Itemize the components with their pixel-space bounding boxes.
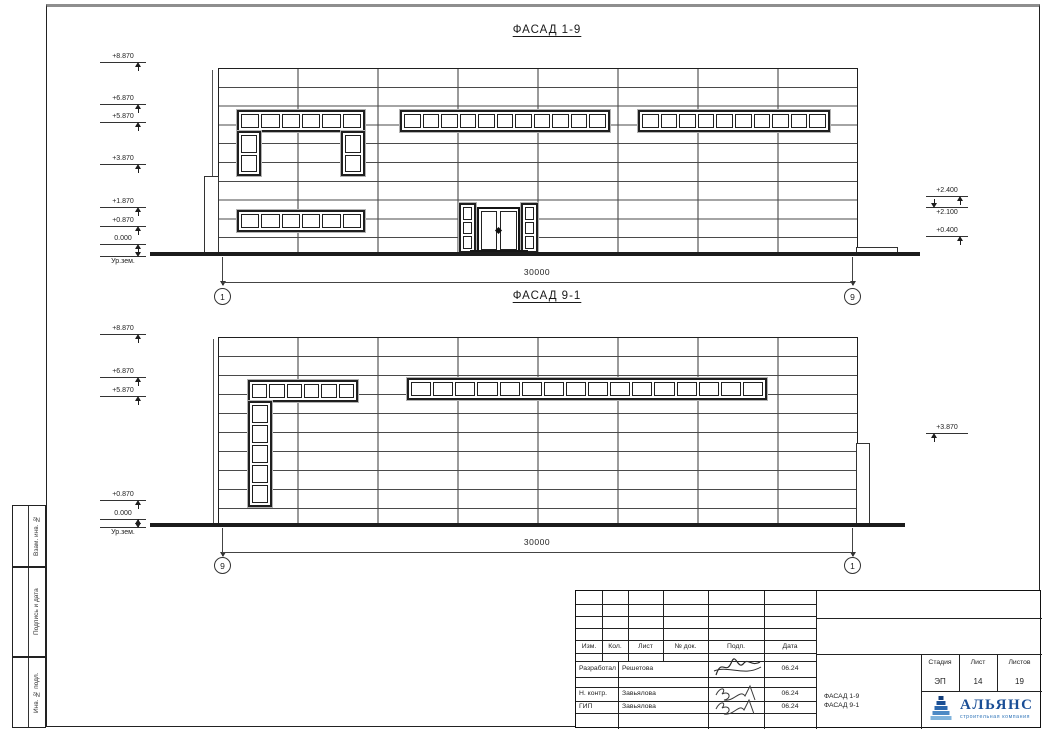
window-pane xyxy=(699,382,719,396)
elevation-mark: 0.000 xyxy=(100,235,146,245)
window-pane xyxy=(544,382,564,396)
window-pane xyxy=(252,425,268,443)
tb-name: Завьялова xyxy=(622,690,656,697)
window-strip xyxy=(237,110,365,132)
window-pane xyxy=(677,382,697,396)
window-pane xyxy=(343,114,361,128)
tb-sheet-value: 14 xyxy=(959,677,997,686)
window-pane xyxy=(571,114,588,128)
elevation-mark: +3.870 xyxy=(926,424,968,434)
window-pane xyxy=(345,155,361,173)
elevation-mark: +1.870 xyxy=(100,198,146,208)
window-pane xyxy=(241,135,257,153)
elevation-tick xyxy=(135,122,141,127)
facade-9-1-title: ФАСАД 9-1 xyxy=(437,290,657,302)
elevation-mark: +5.870 xyxy=(100,113,146,123)
elevation-tick xyxy=(135,207,141,212)
window-pane xyxy=(261,114,279,128)
window-pane xyxy=(661,114,678,128)
window-strip xyxy=(407,378,767,400)
elevation-mark: 0.000 xyxy=(100,510,146,520)
elevation-tick xyxy=(135,523,141,528)
company-tagline: строительная компания xyxy=(960,715,1033,720)
window-pane xyxy=(423,114,440,128)
elevation-tick xyxy=(135,396,141,401)
window-pane xyxy=(642,114,659,128)
window-pane xyxy=(302,214,320,228)
tb-col-kol: Кол. xyxy=(602,643,628,650)
tb-col-ndok: № док. xyxy=(663,643,708,650)
window-pane xyxy=(433,382,453,396)
window-pane xyxy=(463,222,472,235)
window-pane xyxy=(441,114,458,128)
window-pane xyxy=(534,114,551,128)
tb-sheets-label: Листов xyxy=(997,659,1042,666)
margin-stamp-label: Взам. инв. № xyxy=(28,506,45,566)
dimension-line xyxy=(222,282,852,283)
window-column xyxy=(237,131,261,176)
window-pane xyxy=(252,384,267,398)
ground-line xyxy=(150,252,920,256)
entrance-sidelight xyxy=(459,203,476,253)
window-pane xyxy=(287,384,302,398)
window-pane xyxy=(654,382,674,396)
ground-level-label: Ур.зем. xyxy=(100,256,146,265)
tb-col-podp: Подп. xyxy=(708,643,764,650)
window-pane xyxy=(754,114,771,128)
elevation-tick xyxy=(957,236,963,241)
axis-bubble-9: 9 xyxy=(214,557,231,574)
window-strip xyxy=(638,110,830,132)
window-pane xyxy=(610,382,630,396)
tb-date: 06.24 xyxy=(764,665,816,672)
window-pane xyxy=(241,214,259,228)
dimension-value: 30000 xyxy=(497,267,577,277)
window-pane xyxy=(515,114,532,128)
axis-leader xyxy=(852,528,853,556)
drawing-sheet: Взам. инв. № Подпись и дата Инв. № подл.… xyxy=(0,0,1047,733)
window-pane xyxy=(404,114,421,128)
window-pane xyxy=(261,214,279,228)
elevation-tick xyxy=(135,252,141,257)
elevation-tick xyxy=(135,226,141,231)
window-pane xyxy=(282,214,300,228)
elevation-mark: +0.870 xyxy=(100,491,146,501)
dimension-value: 30000 xyxy=(497,537,577,547)
window-pane xyxy=(282,114,300,128)
window-pane xyxy=(552,114,569,128)
window-strip xyxy=(248,380,358,402)
window-column xyxy=(248,401,272,507)
signature-zavyalova xyxy=(712,697,764,719)
elevation-tick xyxy=(135,104,141,109)
window-pane xyxy=(252,405,268,423)
elevation-tick xyxy=(135,62,141,67)
window-pane xyxy=(343,214,361,228)
window-column xyxy=(341,131,365,176)
window-pane xyxy=(525,222,534,235)
window-pane xyxy=(698,114,715,128)
tb-col-list: Лист xyxy=(628,643,663,650)
margin-stamp-label: Подпись и дата xyxy=(28,568,45,656)
signature-reshetova xyxy=(710,651,764,681)
window-pane xyxy=(679,114,696,128)
tb-name: Завьялова xyxy=(622,703,656,710)
elevation-tick xyxy=(135,500,141,505)
right-annex-wall xyxy=(856,443,870,525)
facade-9-1-building xyxy=(218,337,858,527)
window-pane xyxy=(322,114,340,128)
elevation-mark: +8.870 xyxy=(100,325,146,335)
axis-bubble-1: 1 xyxy=(844,557,861,574)
window-strip xyxy=(237,210,365,232)
window-pane xyxy=(252,485,268,503)
elevation-tick xyxy=(135,377,141,382)
facade-1-9-title: ФАСАД 1-9 xyxy=(437,24,657,36)
window-pane xyxy=(721,382,741,396)
elevation-mark: +0.400 xyxy=(926,227,968,237)
window-pane xyxy=(525,207,534,220)
window-pane xyxy=(588,382,608,396)
elevation-mark: +3.870 xyxy=(100,155,146,165)
window-pane xyxy=(743,382,763,396)
window-pane xyxy=(809,114,826,128)
company-logo: АЛЬЯНС строительная компания xyxy=(928,694,1033,724)
window-pane xyxy=(269,384,284,398)
window-pane xyxy=(241,114,259,128)
window-pane xyxy=(304,384,319,398)
tb-doc-name-line2: ФАСАД 9-1 xyxy=(824,702,859,709)
entrance-sidelight xyxy=(521,203,538,253)
window-pane xyxy=(241,155,257,173)
axis-bubble-9: 9 xyxy=(844,288,861,305)
window-pane xyxy=(302,114,320,128)
tb-name: Решетова xyxy=(622,665,653,672)
dimension-line xyxy=(222,552,852,553)
tb-sheet-label: Лист xyxy=(959,659,997,666)
window-pane xyxy=(477,382,497,396)
elevation-mark: +6.870 xyxy=(100,368,146,378)
window-pane xyxy=(411,382,431,396)
window-pane xyxy=(463,236,472,249)
elevation-tick xyxy=(931,433,937,438)
window-pane xyxy=(252,465,268,483)
window-pane xyxy=(566,382,586,396)
elevation-mark: +6.870 xyxy=(100,95,146,105)
ground-level-label: Ур.зем. xyxy=(100,527,146,536)
window-pane xyxy=(478,114,495,128)
ground-line xyxy=(150,523,905,527)
window-pane xyxy=(321,384,336,398)
elevation-mark: +2.400 xyxy=(926,187,968,197)
window-strip xyxy=(400,110,610,132)
window-pane xyxy=(463,207,472,220)
tb-stage-value: ЭП xyxy=(921,677,959,686)
window-pane xyxy=(500,382,520,396)
elevation-mark: +5.870 xyxy=(100,387,146,397)
tb-col-izm: Изм. xyxy=(576,643,602,650)
tb-doc-name-line1: ФАСАД 1-9 xyxy=(824,693,859,700)
corner-pilaster-line xyxy=(213,339,214,524)
window-pane xyxy=(455,382,475,396)
window-pane xyxy=(735,114,752,128)
tb-col-data: Дата xyxy=(764,643,816,650)
tb-date: 06.24 xyxy=(764,703,816,710)
elevation-mark: +2.100 xyxy=(926,207,968,216)
tb-role: Н. контр. xyxy=(579,690,607,697)
axis-leader xyxy=(222,257,223,285)
company-name: АЛЬЯНС xyxy=(960,698,1033,713)
margin-stamp-inv: Инв. № подл. xyxy=(12,657,46,728)
window-pane xyxy=(497,114,514,128)
tb-sheets-value: 19 xyxy=(997,677,1042,686)
window-pane xyxy=(632,382,652,396)
elevation-tick xyxy=(931,203,937,208)
elevation-tick xyxy=(135,334,141,339)
elevation-mark: +8.870 xyxy=(100,53,146,63)
margin-stamp-podpis: Подпись и дата xyxy=(12,567,46,657)
window-pane xyxy=(522,382,542,396)
title-block: Изм. Кол. Лист № док. Подп. Дата Разрабо… xyxy=(575,590,1041,728)
left-annex-wall xyxy=(204,176,219,254)
tb-date: 06.24 xyxy=(764,690,816,697)
tb-role: Разработал xyxy=(579,665,616,672)
elevation-tick xyxy=(135,164,141,169)
tb-role: ГИП xyxy=(579,703,592,710)
window-pane xyxy=(322,214,340,228)
window-pane xyxy=(716,114,733,128)
margin-stamp-vzam: Взам. инв. № xyxy=(12,505,46,567)
tb-stage-label: Стадия xyxy=(921,659,959,666)
window-pane xyxy=(252,445,268,463)
elevation-mark: +0.870 xyxy=(100,217,146,227)
axis-bubble-1: 1 xyxy=(214,288,231,305)
margin-stamp-label: Инв. № подл. xyxy=(28,658,45,727)
window-pane xyxy=(589,114,606,128)
window-pane xyxy=(772,114,789,128)
axis-leader xyxy=(852,257,853,285)
window-pane xyxy=(339,384,354,398)
elevation-tick xyxy=(957,196,963,201)
window-pane xyxy=(460,114,477,128)
window-pane xyxy=(525,236,534,249)
pyramid-logo-icon xyxy=(928,694,954,724)
window-pane xyxy=(345,135,361,153)
window-pane xyxy=(791,114,808,128)
